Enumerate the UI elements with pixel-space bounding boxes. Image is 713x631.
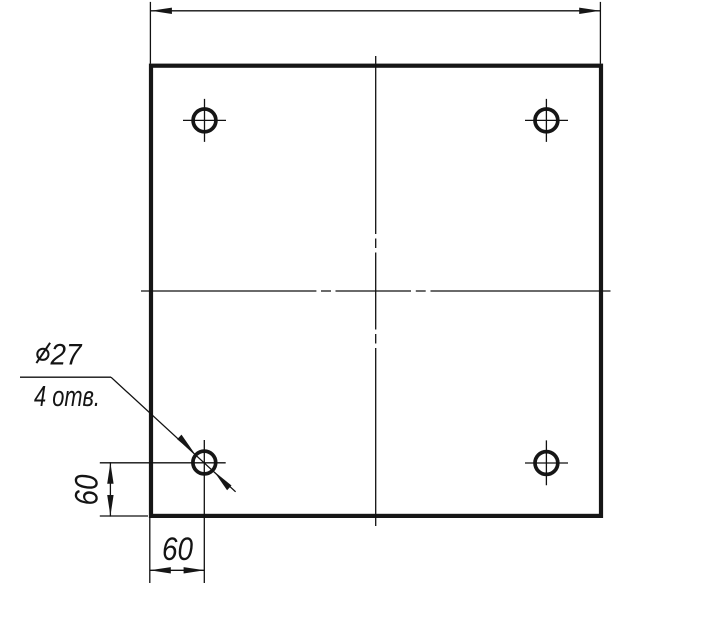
- svg-text:60: 60: [162, 531, 193, 567]
- svg-text:27: 27: [50, 339, 83, 372]
- svg-text:4 отв.: 4 отв.: [34, 381, 100, 413]
- svg-text:60: 60: [69, 475, 105, 506]
